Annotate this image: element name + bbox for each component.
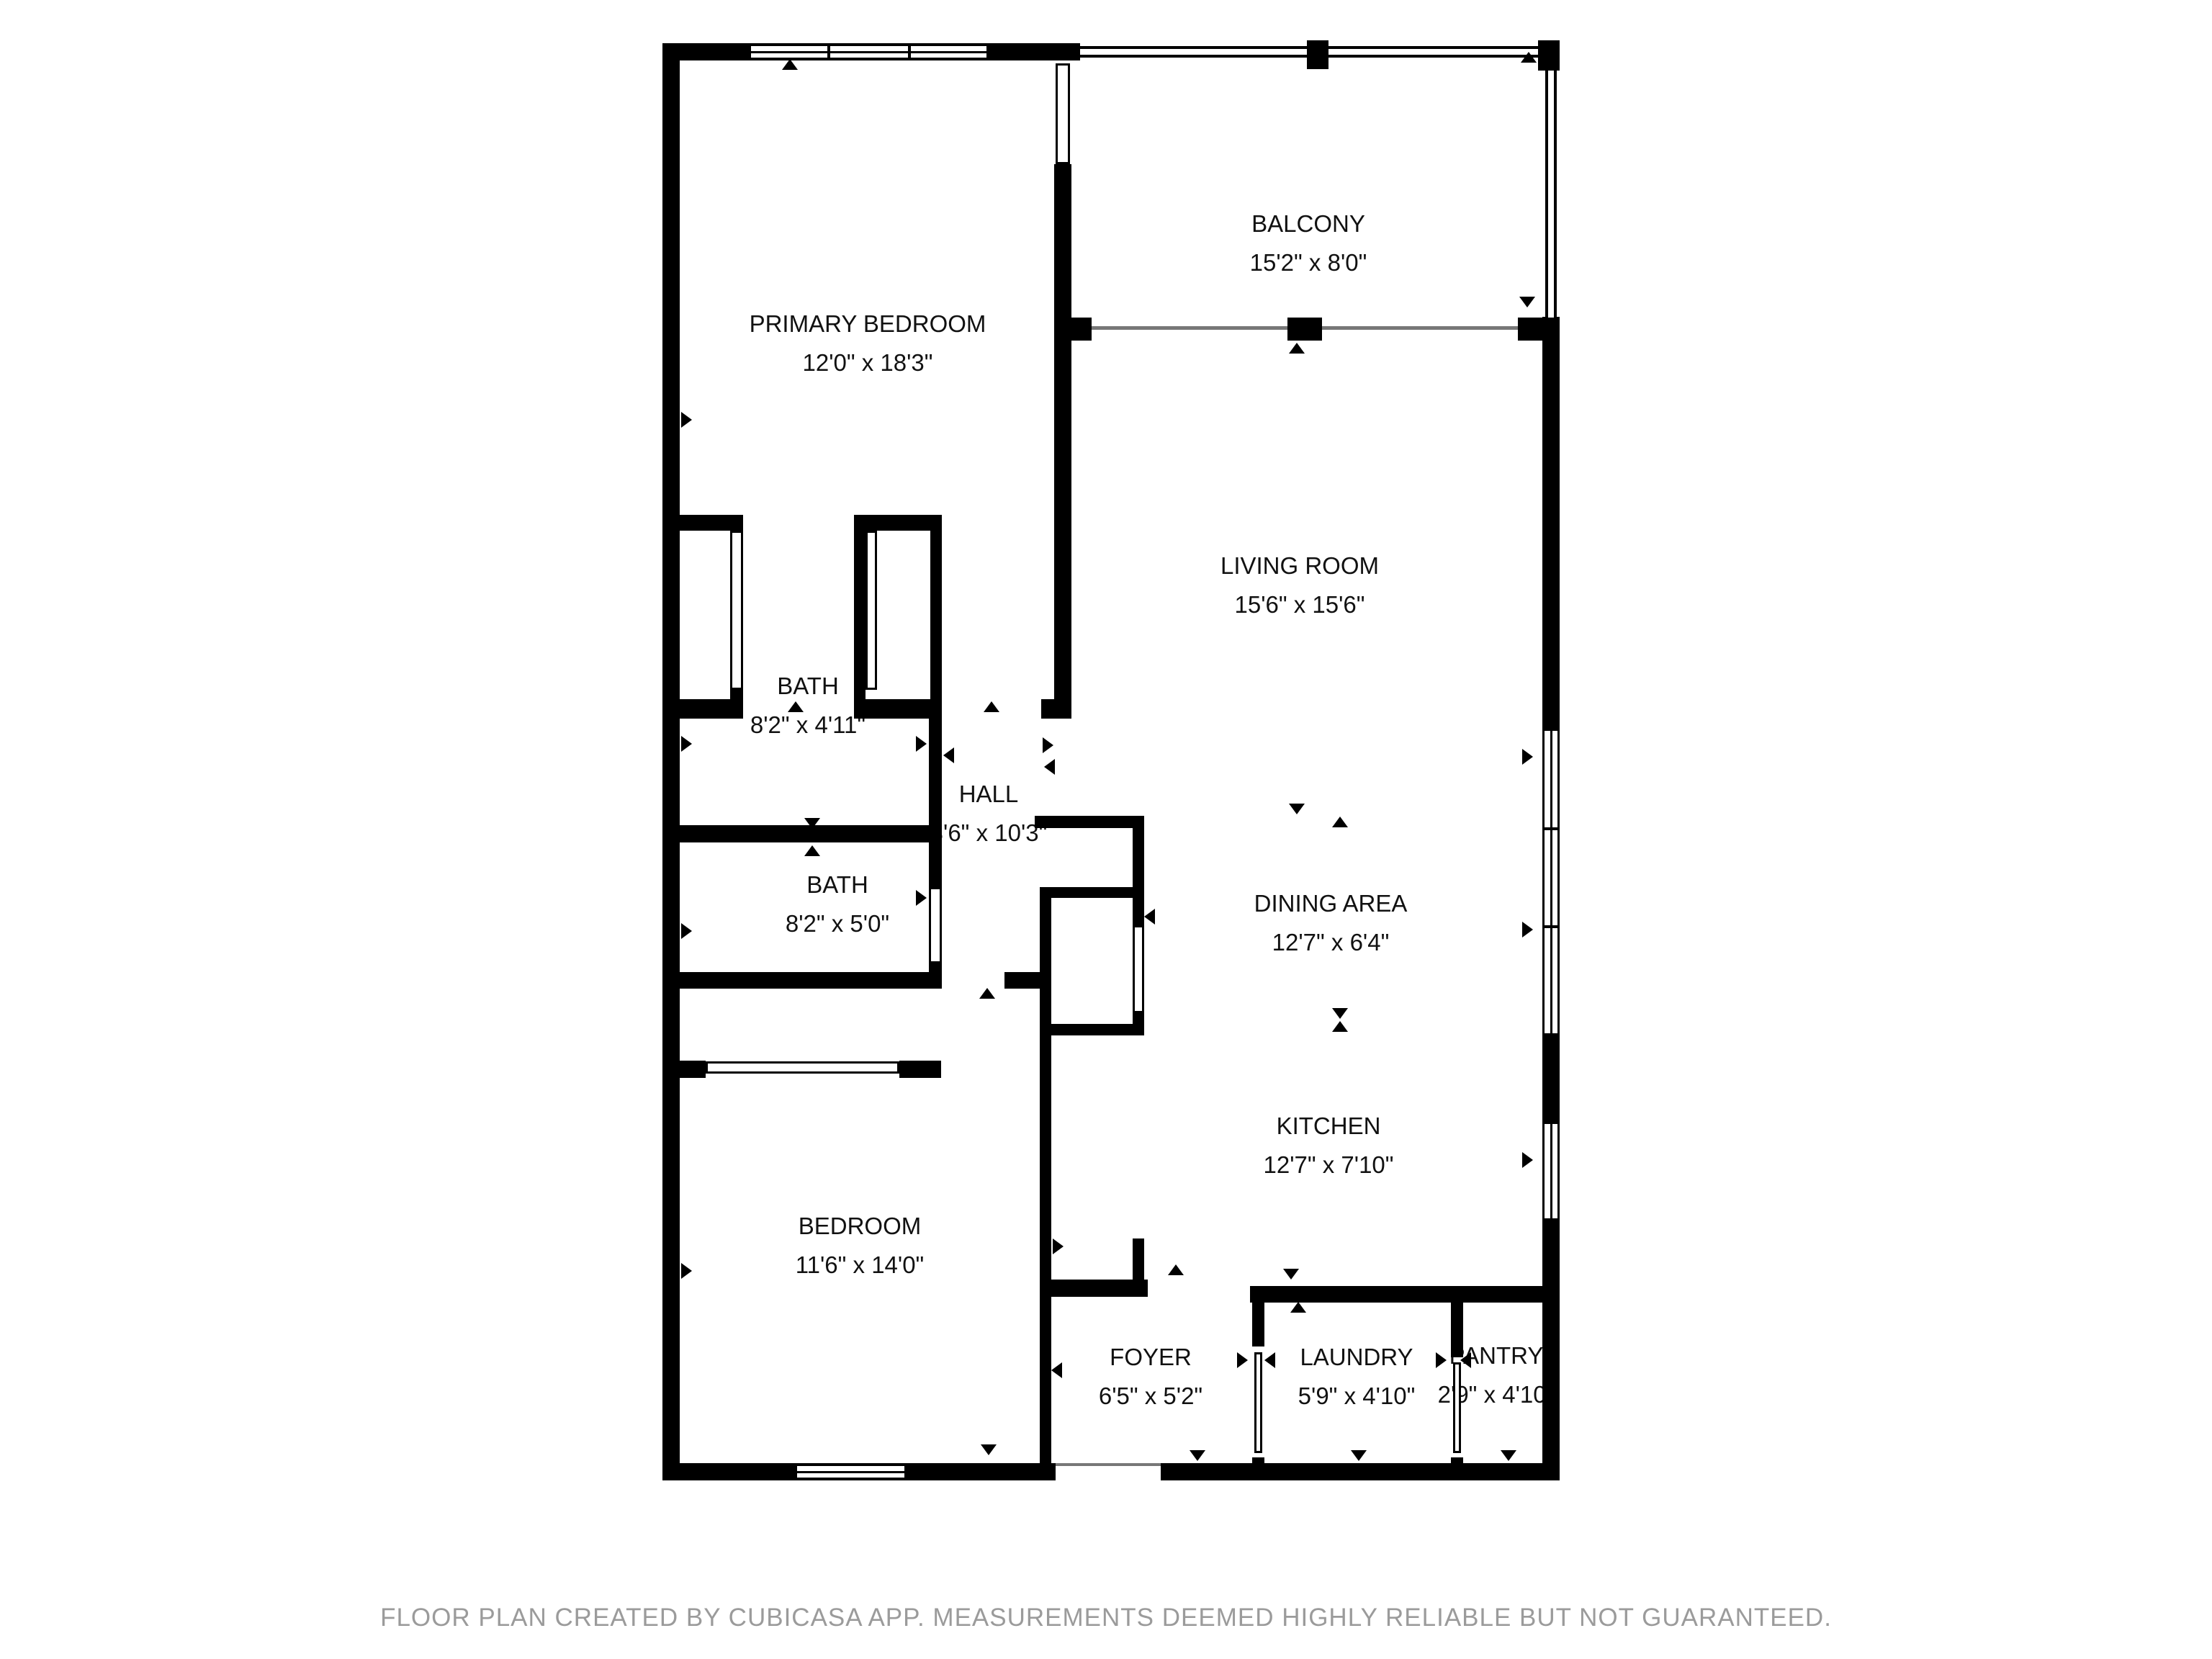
wall <box>680 699 736 719</box>
wall <box>680 972 942 989</box>
opening-marker-icon <box>1501 1450 1516 1461</box>
opening-marker-icon <box>681 923 692 939</box>
wall <box>1451 1303 1463 1357</box>
room-label-bedroom: BEDROOM 11'6" x 14'0" <box>796 1207 925 1285</box>
opening-marker-icon <box>981 1444 997 1455</box>
window-divider <box>908 46 911 58</box>
opening-marker-icon <box>788 701 804 712</box>
wall <box>680 515 743 531</box>
room-dimensions: 6'5" x 5'2" <box>1099 1377 1202 1416</box>
wall <box>1041 699 1071 719</box>
opening-marker-icon <box>1332 817 1348 827</box>
window-pane-line <box>1550 731 1552 827</box>
wall <box>1287 318 1322 341</box>
sliding-door-track <box>1092 326 1287 330</box>
opening-marker-icon <box>681 736 692 752</box>
wall <box>680 1061 706 1078</box>
opening-marker-icon <box>1522 922 1533 938</box>
window <box>1542 926 1560 1035</box>
opening-marker-icon <box>1283 1269 1299 1280</box>
room-dimensions: 15'6" x 15'6" <box>1220 585 1379 624</box>
wall <box>929 719 942 887</box>
wall <box>1051 1280 1148 1297</box>
room-dimensions: 15'2" x 8'0" <box>1250 243 1367 282</box>
window <box>748 43 989 60</box>
wall <box>1252 1457 1264 1480</box>
room-label-hall: HALL 3'6" x 10'3" <box>930 775 1048 853</box>
room-name: FOYER <box>1099 1338 1202 1377</box>
room-dimensions: 11'6" x 14'0" <box>796 1246 925 1285</box>
room-dimensions: 12'0" x 18'3" <box>750 343 986 382</box>
room-label-balcony: BALCONY 15'2" x 8'0" <box>1250 204 1367 282</box>
room-label-living-room: LIVING ROOM 15'6" x 15'6" <box>1220 547 1379 624</box>
window <box>1542 828 1560 927</box>
opening-marker-icon <box>1519 297 1535 307</box>
closet-door <box>1133 925 1144 1013</box>
wall <box>1035 816 1144 828</box>
wall <box>1133 816 1144 925</box>
railing-post <box>1307 40 1328 69</box>
room-dimensions: 12'7" x 7'10" <box>1264 1146 1394 1184</box>
closet-door <box>866 531 877 690</box>
opening-marker-icon <box>681 412 692 428</box>
wall <box>1250 1286 1560 1303</box>
opening-marker-icon <box>1190 1450 1205 1461</box>
window-divider <box>827 46 830 58</box>
wall <box>1040 1024 1144 1035</box>
room-dimensions: 8'2" x 5'0" <box>786 904 889 943</box>
opening-marker-icon <box>1289 343 1305 354</box>
wall <box>1542 317 1560 729</box>
wall <box>899 1061 941 1078</box>
opening-marker-icon <box>681 1263 692 1279</box>
laundry-door <box>1254 1352 1262 1453</box>
room-name: DINING AREA <box>1254 884 1408 923</box>
wall <box>662 1463 794 1480</box>
window-pane-line <box>751 51 986 53</box>
opening-marker-icon <box>1436 1352 1447 1368</box>
wall <box>1071 318 1092 341</box>
opening-marker-icon <box>1237 1352 1248 1368</box>
room-name: KITCHEN <box>1264 1107 1394 1146</box>
room-label-foyer: FOYER 6'5" x 5'2" <box>1099 1338 1202 1416</box>
room-label-laundry: LAUNDRY 5'9" x 4'10" <box>1298 1338 1416 1416</box>
wall <box>1252 1303 1264 1346</box>
window <box>1542 729 1560 829</box>
wall <box>1040 887 1051 1463</box>
opening-marker-icon <box>1053 1238 1064 1254</box>
wall <box>1040 887 1133 898</box>
window-pane-line <box>1550 928 1552 1033</box>
balcony-door <box>1056 63 1070 164</box>
window-pane-line <box>1550 1124 1552 1218</box>
room-name: BEDROOM <box>796 1207 925 1246</box>
balcony-railing <box>1545 69 1557 320</box>
room-label-dining-area: DINING AREA 12'7" x 6'4" <box>1254 884 1408 962</box>
wall <box>1542 1220 1560 1480</box>
room-name: BALCONY <box>1250 204 1367 243</box>
opening-marker-icon <box>1332 1021 1348 1032</box>
room-dimensions: 8'2" x 4'11" <box>750 706 866 745</box>
window <box>1542 1122 1560 1220</box>
opening-marker-icon <box>916 736 927 752</box>
opening-marker-icon <box>1522 749 1533 765</box>
opening-marker-icon <box>1289 804 1305 814</box>
window-pane-line <box>797 1471 904 1473</box>
opening-marker-icon <box>804 818 820 829</box>
floor-plan: BALCONY 15'2" x 8'0" PRIMARY BEDROOM 12'… <box>0 0 2212 1659</box>
window-pane-line <box>1550 830 1552 925</box>
opening-marker-icon <box>1351 1450 1367 1461</box>
room-name: PRIMARY BEDROOM <box>750 305 986 343</box>
wall <box>1161 1463 1560 1480</box>
room-dimensions: 3'6" x 10'3" <box>930 814 1048 853</box>
opening-marker-icon <box>979 988 995 999</box>
room-label-bath-1: BATH 8'2" x 4'11" <box>750 667 866 745</box>
room-name: LIVING ROOM <box>1220 547 1379 585</box>
opening-marker-icon <box>1044 759 1055 775</box>
wall <box>1451 1457 1463 1480</box>
opening-marker-icon <box>1521 52 1537 63</box>
sliding-door-track <box>1322 326 1518 330</box>
room-name: HALL <box>930 775 1048 814</box>
room-name: BATH <box>750 667 866 706</box>
opening-marker-icon <box>1051 1362 1062 1378</box>
opening-marker-icon <box>984 701 999 712</box>
bath-door <box>929 887 942 963</box>
room-label-bath-2: BATH 8'2" x 5'0" <box>786 866 889 943</box>
opening-marker-icon <box>1290 1302 1306 1313</box>
wall <box>907 1463 1056 1480</box>
footer-disclaimer: FLOOR PLAN CREATED BY CUBICASA APP. MEAS… <box>380 1604 1832 1632</box>
opening-marker-icon <box>1043 737 1053 753</box>
closet-door <box>730 531 743 690</box>
wall <box>1054 164 1071 714</box>
opening-marker-icon <box>1264 1352 1275 1368</box>
entry-threshold <box>1056 1463 1161 1466</box>
closet-sliding-door <box>706 1061 899 1074</box>
opening-marker-icon <box>1332 1008 1348 1019</box>
opening-marker-icon <box>1460 1352 1471 1368</box>
opening-marker-icon <box>916 890 927 906</box>
opening-marker-icon <box>804 845 820 856</box>
room-dimensions: 5'9" x 4'10" <box>1298 1377 1416 1416</box>
opening-marker-icon <box>943 747 954 763</box>
room-name: BATH <box>786 866 889 904</box>
wall <box>1518 318 1560 341</box>
opening-marker-icon <box>1522 1152 1533 1168</box>
wall <box>680 43 748 60</box>
wall <box>854 699 942 719</box>
opening-marker-icon <box>1168 1264 1184 1275</box>
wall <box>662 43 680 1480</box>
window <box>794 1463 907 1480</box>
wall <box>930 515 942 719</box>
pantry-door <box>1453 1362 1461 1453</box>
railing-post <box>1538 40 1560 71</box>
wall <box>1542 1035 1560 1122</box>
room-label-kitchen: KITCHEN 12'7" x 7'10" <box>1264 1107 1394 1184</box>
room-name: LAUNDRY <box>1298 1338 1416 1377</box>
wall <box>989 43 1080 60</box>
room-dimensions: 12'7" x 6'4" <box>1254 923 1408 962</box>
wall <box>854 515 866 719</box>
opening-marker-icon <box>1144 909 1155 925</box>
opening-marker-icon <box>782 59 798 70</box>
room-label-primary-bedroom: PRIMARY BEDROOM 12'0" x 18'3" <box>750 305 986 382</box>
